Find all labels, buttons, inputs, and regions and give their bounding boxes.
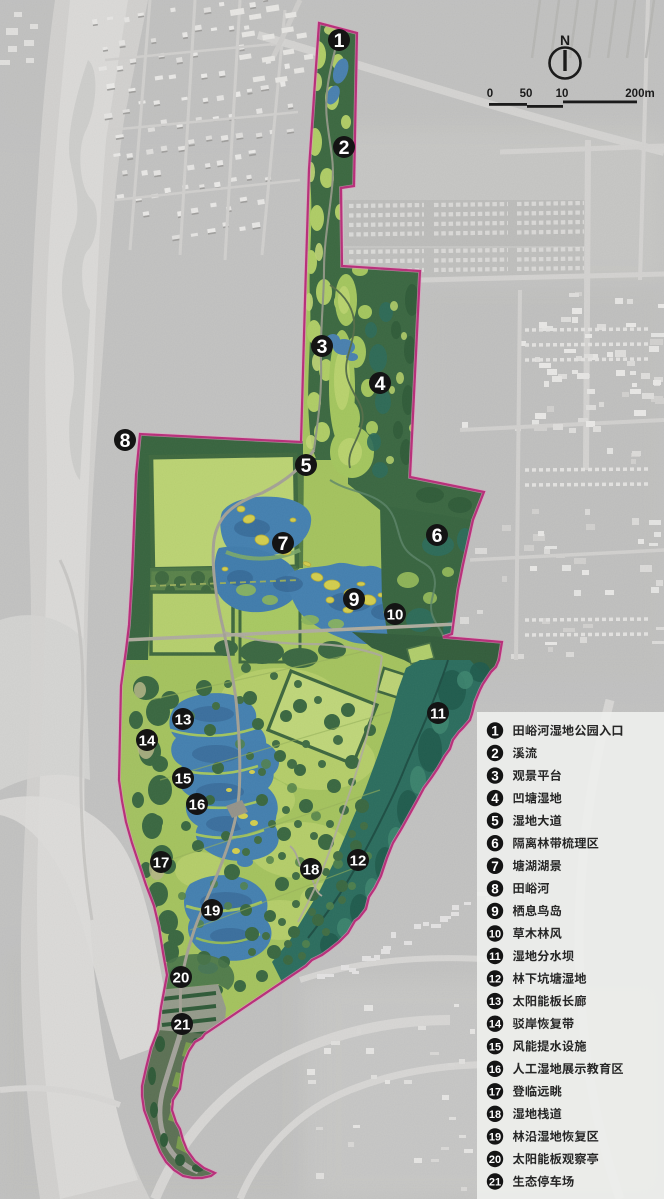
svg-text:8: 8: [120, 430, 131, 452]
svg-text:13: 13: [489, 996, 501, 1008]
svg-text:14: 14: [489, 1019, 502, 1031]
svg-text:10: 10: [489, 929, 501, 941]
svg-text:15: 15: [489, 1041, 501, 1053]
svg-text:3: 3: [491, 769, 499, 784]
svg-text:6: 6: [432, 525, 443, 547]
svg-text:2: 2: [491, 746, 499, 761]
svg-text:10: 10: [556, 88, 569, 100]
svg-text:16: 16: [189, 796, 206, 813]
svg-text:3: 3: [317, 336, 328, 358]
svg-text:21: 21: [174, 1016, 191, 1033]
svg-text:21: 21: [489, 1177, 501, 1189]
svg-text:15: 15: [175, 770, 192, 787]
svg-text:10: 10: [387, 606, 404, 623]
svg-text:N: N: [560, 32, 570, 48]
svg-text:20: 20: [173, 969, 190, 986]
svg-text:7: 7: [278, 533, 289, 555]
svg-text:12: 12: [350, 852, 367, 869]
svg-text:1: 1: [491, 724, 499, 739]
svg-text:1: 1: [334, 30, 345, 52]
svg-text:8: 8: [491, 881, 499, 896]
svg-text:4: 4: [375, 373, 386, 395]
svg-text:11: 11: [430, 705, 446, 722]
svg-text:17: 17: [153, 854, 170, 871]
svg-text:20: 20: [489, 1154, 501, 1166]
svg-text:13: 13: [175, 711, 192, 728]
svg-text:5: 5: [301, 455, 312, 477]
svg-text:5: 5: [491, 814, 499, 829]
svg-text:19: 19: [489, 1132, 501, 1144]
svg-text:0: 0: [487, 88, 493, 100]
svg-text:17: 17: [489, 1086, 501, 1098]
svg-text:9: 9: [491, 904, 499, 919]
svg-text:4: 4: [491, 791, 499, 806]
svg-text:7: 7: [491, 859, 499, 874]
svg-text:16: 16: [489, 1064, 501, 1076]
svg-text:2: 2: [339, 137, 350, 159]
svg-text:14: 14: [139, 732, 156, 749]
svg-text:50: 50: [520, 88, 533, 100]
svg-text:12: 12: [489, 974, 501, 986]
svg-text:18: 18: [303, 861, 320, 878]
svg-text:19: 19: [204, 902, 221, 919]
svg-text:11: 11: [489, 951, 501, 963]
svg-text:6: 6: [491, 836, 499, 851]
svg-text:9: 9: [349, 589, 360, 611]
svg-text:18: 18: [489, 1109, 501, 1121]
svg-text:200m: 200m: [625, 88, 654, 100]
